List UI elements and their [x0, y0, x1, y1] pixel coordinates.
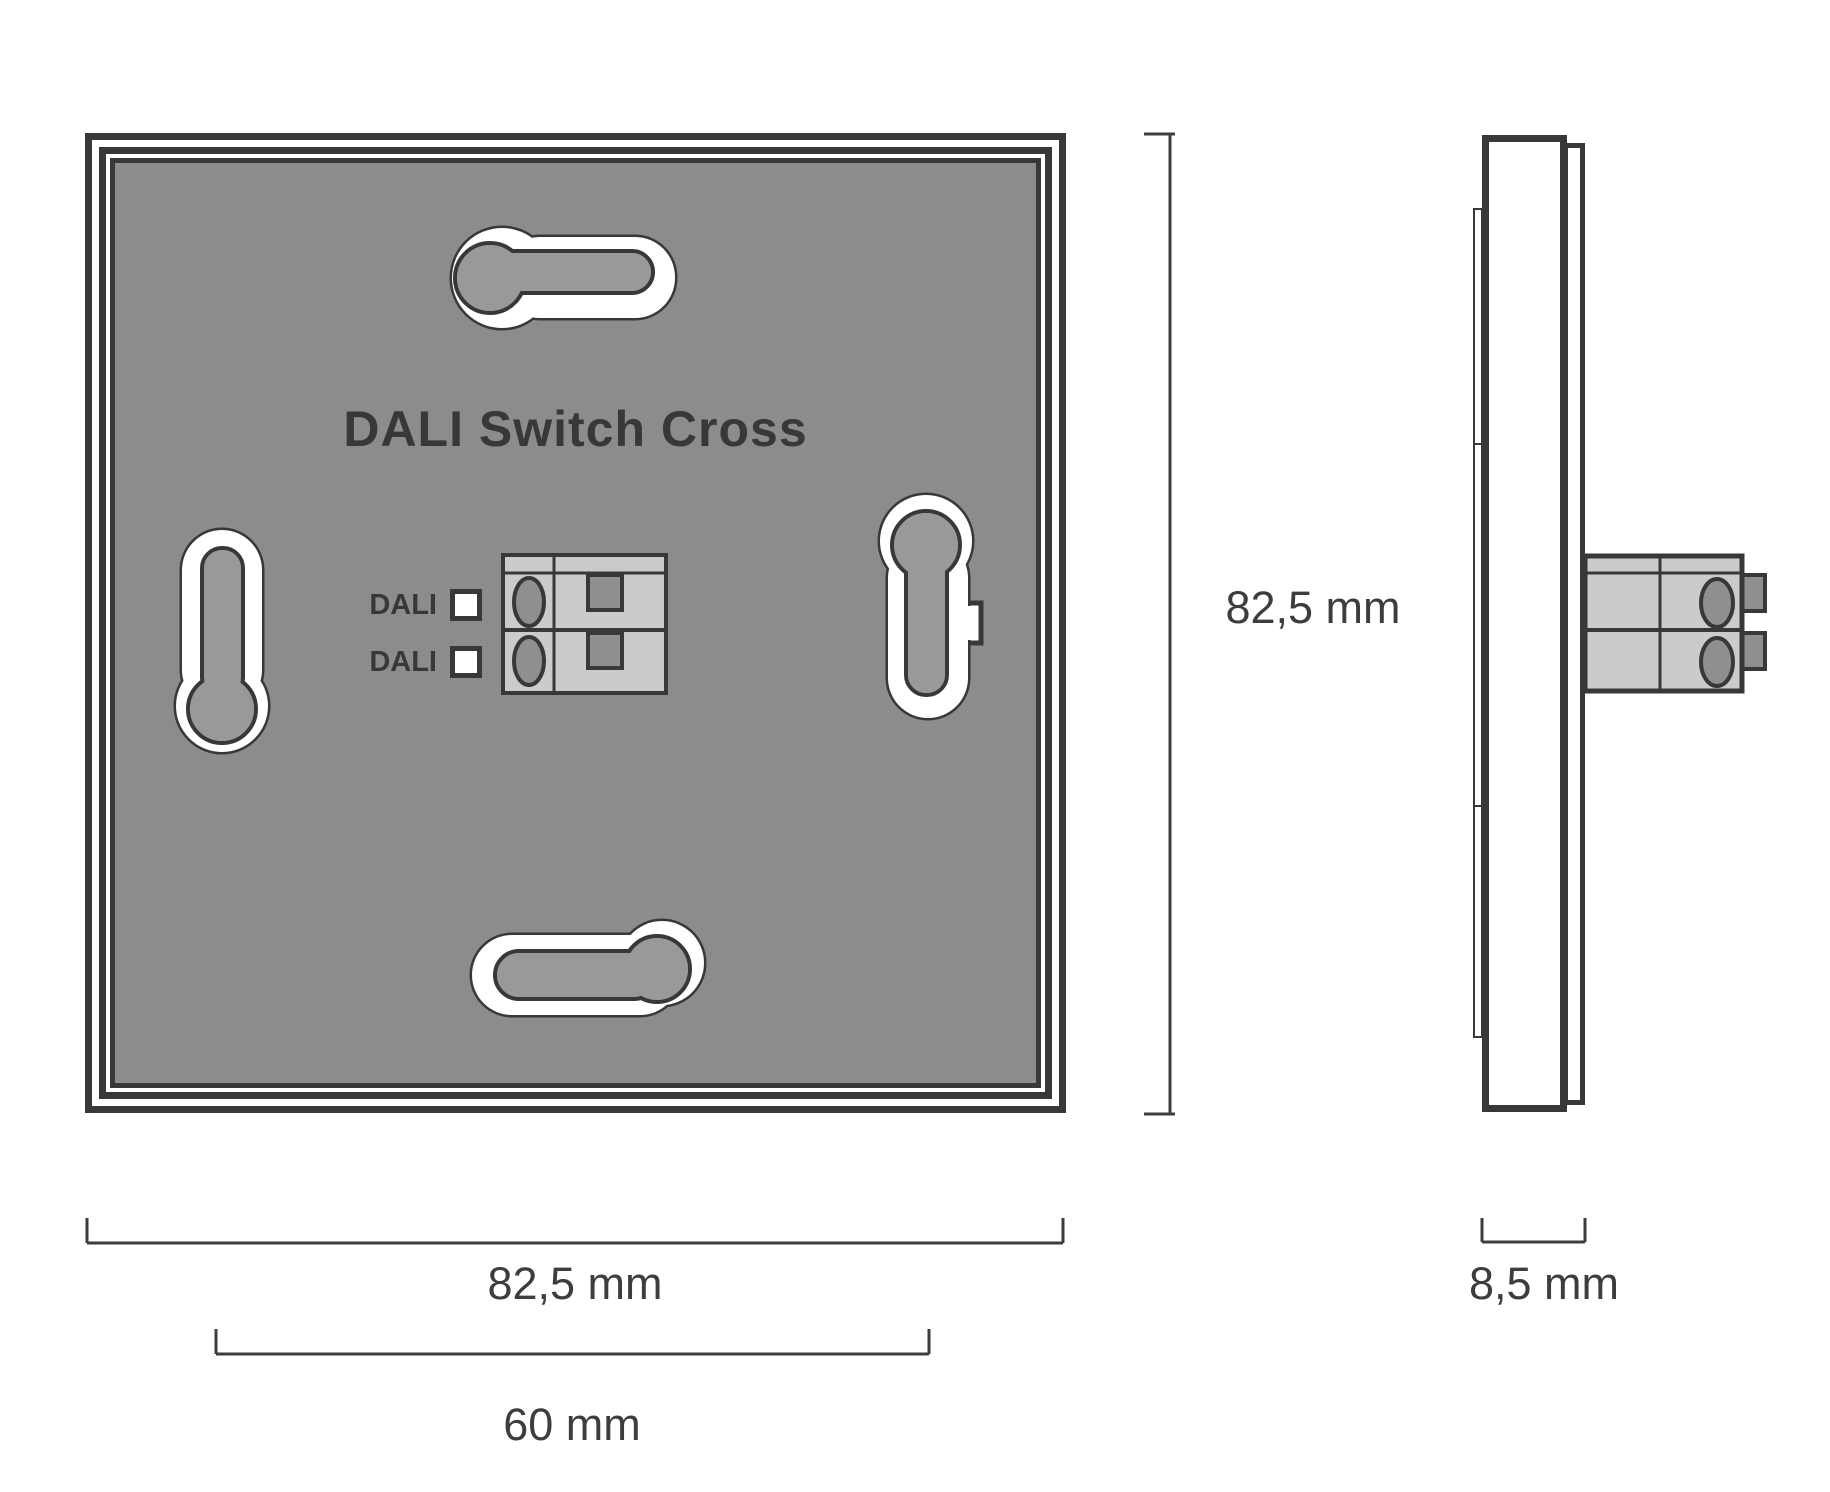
front-view-outer-frame [85, 133, 1066, 1113]
dimension-label-depth: 8,5 mm [1394, 1259, 1694, 1309]
front-view-inner-frame [99, 147, 1052, 1099]
product-title: DALI Switch Cross [115, 400, 1036, 458]
technical-drawing-canvas: DALI Switch Cross DALI DALI 82,5 mm 82,5… [0, 0, 1830, 1492]
wire-hole-icon [1701, 638, 1733, 686]
dali-marker-square [450, 646, 482, 678]
wire-hole-icon [1701, 579, 1733, 627]
front-panel [110, 158, 1041, 1088]
glass-edge-seam [1475, 805, 1481, 807]
connector-tab-icon [1742, 575, 1765, 611]
dimension-label-width: 82,5 mm [425, 1259, 725, 1309]
dimension-label-height: 82,5 mm [1163, 583, 1463, 633]
dali-terminal-label: DALI [337, 647, 437, 678]
dimension-label-inner-width: 60 mm [422, 1400, 722, 1450]
connector-tab-icon [1742, 633, 1765, 669]
terminal-block-side [1585, 556, 1765, 691]
side-view-body [1482, 135, 1567, 1112]
dali-marker-square [450, 589, 482, 621]
glass-edge-seam [1475, 443, 1481, 445]
dali-terminal-label: DALI [337, 590, 437, 621]
